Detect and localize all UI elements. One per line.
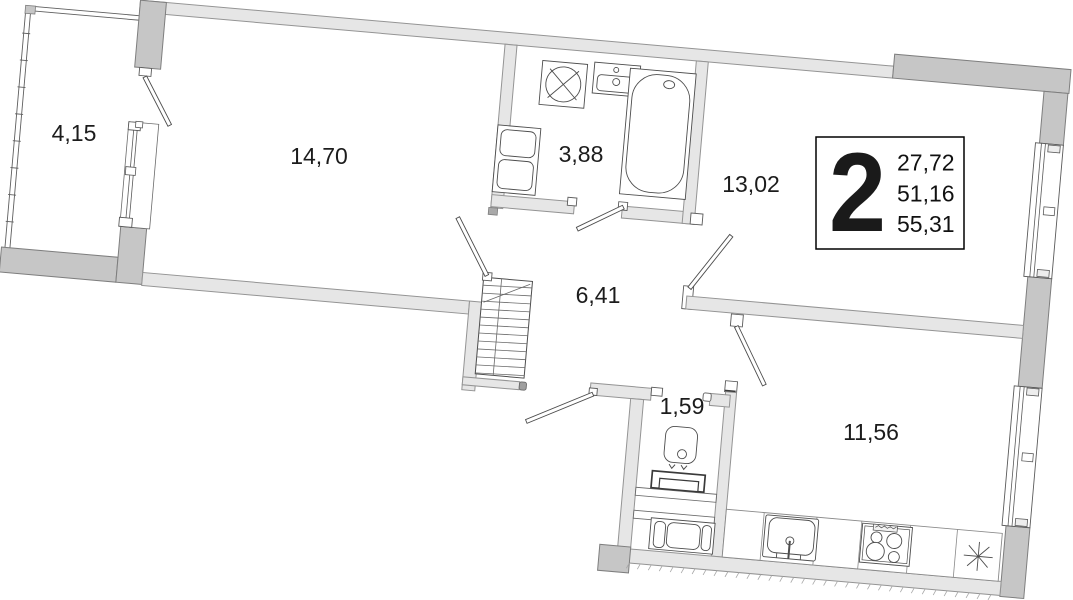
svg-text:55,31: 55,31 (897, 211, 955, 237)
svg-text:13,02: 13,02 (722, 171, 780, 197)
svg-text:1,59: 1,59 (660, 393, 705, 419)
svg-text:6,41: 6,41 (576, 282, 621, 308)
svg-text:14,70: 14,70 (290, 143, 348, 169)
svg-text:4,15: 4,15 (52, 120, 97, 146)
svg-text:51,16: 51,16 (897, 181, 955, 207)
svg-text:2: 2 (829, 130, 886, 255)
svg-text:3,88: 3,88 (559, 141, 604, 167)
svg-text:27,72: 27,72 (897, 150, 955, 176)
svg-text:11,56: 11,56 (843, 419, 899, 445)
